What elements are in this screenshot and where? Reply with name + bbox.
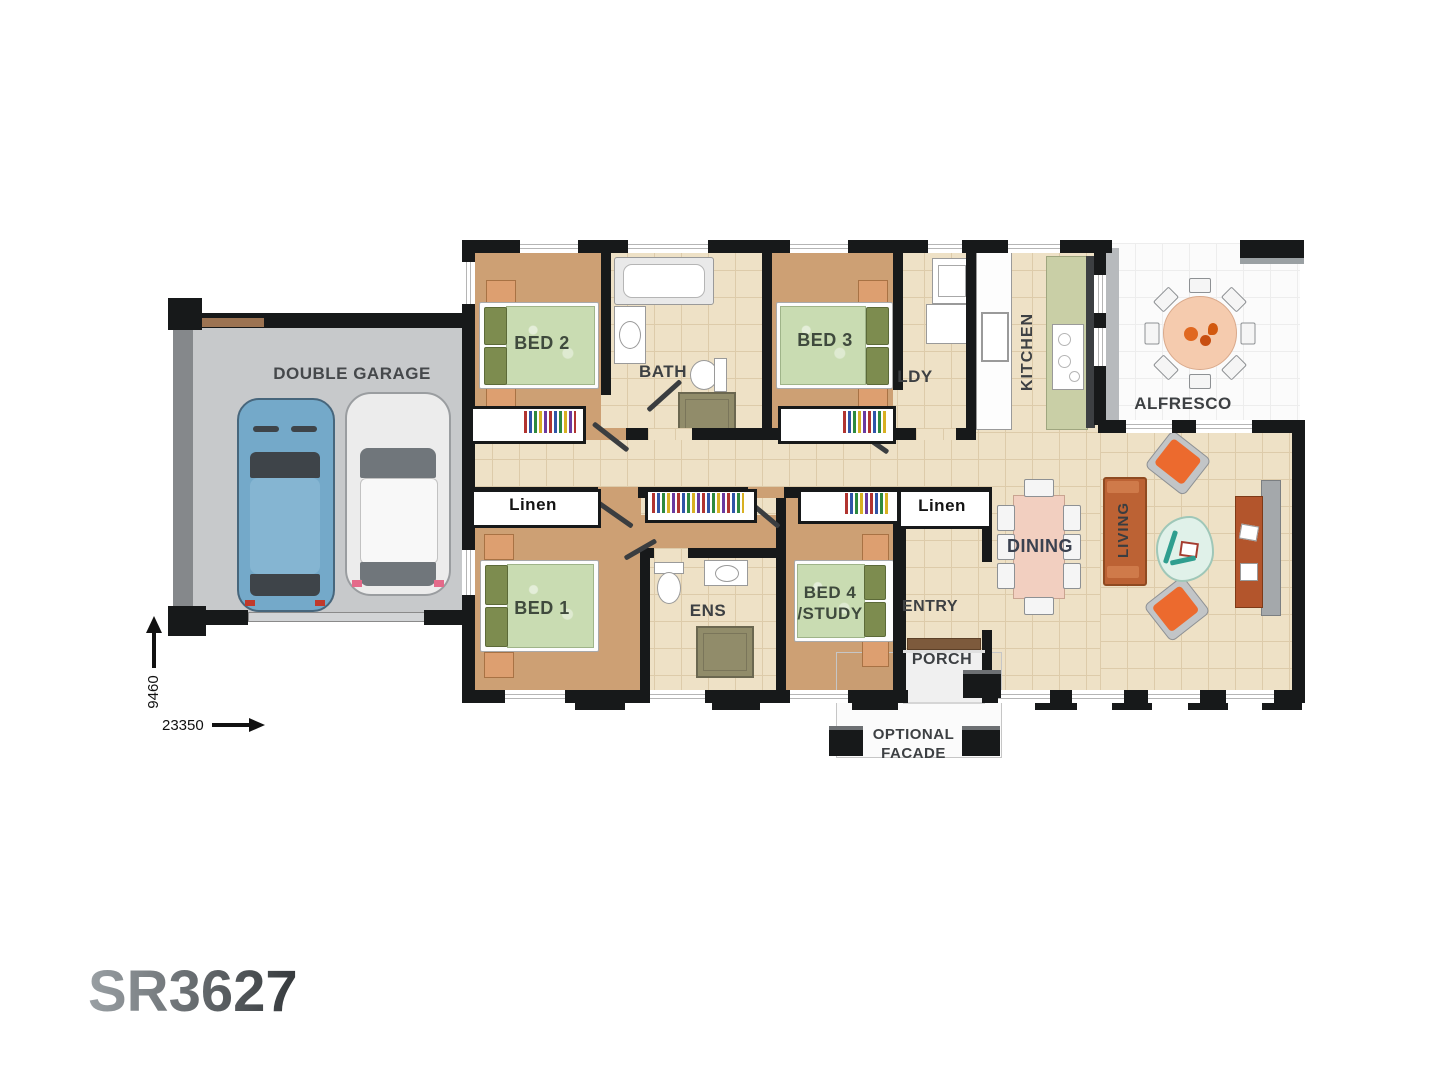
car-blue-hood-vent2 [291,426,317,432]
plan-title: SR3627 [88,958,298,1025]
width-arrow-head [249,718,265,732]
bathtub-inner [623,264,705,298]
window-bed2-left [462,262,475,304]
stove-burner-1 [1058,333,1071,346]
window-bed1-bottom [505,690,565,703]
pier-shadow-3 [852,701,898,710]
window-living-bottom-1 [998,690,1050,703]
coffee-table [1156,516,1214,582]
depth-arrow-head [146,616,162,633]
car-blue-roof [250,478,320,574]
floor-plan-canvas: DOUBLE GARAGE [0,0,1440,1080]
car-white-taillight2 [434,580,444,587]
dining-chair-bottom [1024,597,1054,615]
ldy-tub-inner [938,265,966,297]
bed4-label: BED 4 [780,583,880,603]
wall-left [462,240,475,703]
window-kitchen-alfresco-1 [1094,275,1106,313]
alfresco-corner-shadow [1240,258,1304,264]
window-bed3 [790,240,848,253]
car-white [345,392,451,596]
alfresco-table [1163,296,1237,370]
car-blue-windshield [250,452,320,478]
garage-left-wall [173,320,193,616]
facade-pillar-right [962,726,1000,756]
optional-facade-label: OPTIONAL [866,726,961,743]
window-bath [628,240,708,253]
alfresco-chair-7 [1189,278,1211,293]
car-blue-taillight2 [315,600,325,606]
window-living-bottom-3 [1148,690,1200,703]
alfresco-chair-1 [1241,323,1256,345]
pier-shadow-2 [712,701,760,710]
tv-cabinet [1235,496,1263,608]
wall-bath-bed3 [762,240,772,440]
stacker-door-2 [1196,420,1252,433]
coffee-table-runner2 [1170,555,1196,565]
bathtub [614,257,714,305]
bed1-robe-clothes [652,493,744,513]
alfresco-corner [1240,240,1304,258]
porch-label: PORCH [902,651,982,669]
car-blue-hood-vent [253,426,279,432]
tv-console [1240,563,1258,581]
bed2-robe-clothes [524,411,576,433]
wall-bed2-bath [601,240,611,395]
window-kitchen-alfresco-2 [1094,328,1106,366]
window-ldy [928,240,962,253]
wall-bed1-ens [640,550,650,703]
bed4-nightstand-top [862,534,889,561]
bed1-nightstand-top [484,534,514,560]
tv-panel [1261,480,1281,616]
alfresco-label: ALFRESCO [1123,394,1243,414]
window-bed2 [520,240,578,253]
door-gap-bath [648,428,692,440]
wall-ldy-kitchen [966,240,976,438]
living-label: LIVING [1093,485,1153,575]
bed4-nightstand-bottom [862,640,889,667]
window-ens-bottom [650,690,705,703]
door-gap-ens [654,548,688,558]
bath-label: BATH [613,362,713,382]
fruit-bowl-orange2 [1200,335,1211,346]
door-gap-ldy [916,428,956,440]
car-white-taillight [352,580,362,587]
car-white-windshield [360,448,436,478]
garage-door [248,612,426,622]
dining-chair-top [1024,479,1054,497]
width-dimension: 23350 [162,717,204,734]
dining-chair-l3 [997,563,1015,589]
car-blue [237,398,335,612]
linen-left-label: Linen [476,495,590,515]
stove-burner-2 [1058,355,1071,368]
bed3-robe-clothes [843,411,886,433]
garage-corner-top-left [168,298,202,330]
ens-basin [715,565,739,582]
alfresco-chair-5 [1145,323,1160,345]
ldy-washer [926,304,968,344]
entry-door [907,638,981,650]
dining-chair-r3 [1063,563,1081,589]
bath-vanity [614,306,646,364]
stacker-door-1 [1126,420,1172,433]
bath-basin [619,321,641,349]
ldy-label: LDY [885,367,945,387]
car-blue-taillight [245,600,255,606]
window-bed4-bottom [790,690,848,703]
bed4-label2: /STUDY [780,604,880,624]
porch-pillar [963,670,1001,698]
ens-shower [696,626,754,678]
dining-chair-r1 [1063,505,1081,531]
dining-label: DINING [992,536,1088,557]
window-living-bottom-4 [1226,690,1274,703]
wall-right [1292,420,1305,703]
entry-label: ENTRY [890,598,970,616]
width-arrow-shaft [212,723,250,727]
ens-vanity [704,560,748,586]
alfresco-chair-3 [1189,374,1211,389]
ens-label: ENS [668,601,748,621]
garage-roof-edge [202,318,264,327]
ens-toilet-bowl [657,572,681,604]
depth-dimension: 9460 [143,662,163,722]
bed1-label: BED 1 [492,598,592,619]
bed3-label: BED 3 [775,330,875,351]
car-white-roof [360,478,438,564]
bed2-label: BED 2 [492,333,592,354]
linen-right-label: Linen [902,496,982,516]
door-gap-bed1 [598,487,638,498]
fruit-bowl-orange [1184,327,1198,341]
garage-bottom-wall-left [192,610,248,625]
garage-label: DOUBLE GARAGE [242,364,462,384]
pier-shadow-1 [575,701,625,710]
dining-chair-l1 [997,505,1015,531]
bath-toilet-tank [714,358,727,392]
optional-facade-label2: FACADE [866,745,961,762]
stove-burner-3 [1069,371,1080,382]
car-white-rear-window [360,562,436,586]
kitchen-label: KITCHEN [998,302,1058,402]
bed1-nightstand-bottom [484,652,514,678]
bed4-robe-clothes [845,493,889,514]
window-bed1-left [462,550,475,595]
window-living-bottom-2 [1072,690,1124,703]
car-blue-rear-window [250,574,320,596]
fruit-bowl-pear [1208,323,1218,335]
tv-remote [1239,524,1259,542]
window-kitchen-top [1008,240,1060,253]
facade-pillar-left [829,726,863,756]
alfresco-wall-face [1106,248,1119,423]
